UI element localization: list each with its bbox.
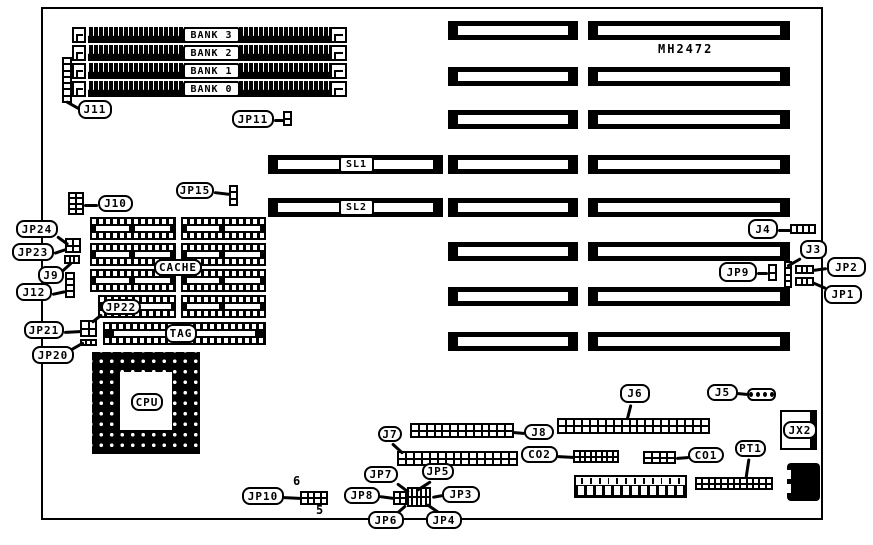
pin	[798, 226, 802, 232]
pin	[703, 485, 707, 489]
jp21-jumper	[80, 320, 97, 337]
pin	[623, 420, 629, 425]
pin	[451, 425, 457, 430]
j4-connector	[790, 224, 816, 234]
pin	[770, 266, 775, 272]
pin	[459, 425, 465, 430]
chip-window	[139, 304, 171, 309]
power-pin-row	[576, 477, 685, 485]
pin	[494, 453, 500, 458]
chip-window	[188, 331, 255, 336]
isa-slot-r8-left	[448, 332, 578, 351]
pin	[615, 420, 621, 425]
pin	[803, 279, 807, 284]
pin	[686, 427, 692, 432]
pin	[686, 420, 692, 425]
pin	[302, 493, 307, 497]
pin	[455, 460, 461, 465]
pin	[615, 427, 621, 432]
pin	[729, 479, 733, 483]
pin	[575, 420, 581, 425]
cache-chip-1	[90, 217, 176, 240]
bank1-label: BANK 1	[183, 63, 240, 79]
jp11-leader	[274, 119, 284, 122]
motherboard-diagram: BANK 3BANK 2BANK 1BANK 0SL1SL2MH2472J11J…	[0, 0, 873, 545]
isa-slot-sl2-right	[588, 198, 790, 217]
j7-header	[397, 451, 518, 466]
pin	[614, 452, 618, 456]
isa-slot-r7-left	[448, 287, 578, 306]
simm-bank0-endcap-left	[72, 81, 86, 97]
isa-slot-sl1-left	[448, 155, 578, 174]
pin	[722, 485, 726, 489]
pin	[420, 432, 426, 437]
pin	[470, 453, 476, 458]
j4-label: J4	[748, 219, 778, 239]
simm-bank1-endcap-right	[330, 63, 347, 79]
pin	[231, 187, 236, 191]
chip-window	[225, 278, 260, 283]
jp3-label: JP3	[442, 486, 480, 503]
jp10-label: JP10	[242, 487, 284, 505]
simm-bank2-endcap-left	[72, 45, 86, 61]
pin	[670, 427, 676, 432]
pin	[90, 330, 96, 336]
chip-window	[187, 278, 219, 283]
pin	[423, 453, 429, 458]
pin	[64, 90, 70, 94]
connector-pin-dot	[756, 392, 760, 397]
jp15-jumper	[229, 185, 238, 206]
pin	[67, 274, 73, 278]
j8-label: J8	[524, 424, 554, 440]
pin	[559, 427, 565, 432]
pin	[716, 479, 720, 483]
keyboard-din-connector	[787, 463, 820, 501]
jp9-leader	[757, 272, 768, 275]
pin	[592, 458, 596, 462]
pin	[591, 420, 597, 425]
pin	[646, 420, 652, 425]
pin	[804, 226, 808, 232]
pin	[808, 267, 812, 272]
pin	[797, 267, 801, 272]
pin	[322, 493, 327, 497]
pin	[638, 427, 644, 432]
pin	[754, 479, 758, 483]
pin	[401, 493, 405, 497]
j7-label: J7	[378, 426, 402, 442]
j11-label: J11	[78, 100, 112, 119]
pin	[608, 458, 612, 462]
power-pin-row	[576, 485, 685, 496]
pin	[603, 458, 607, 462]
pin	[467, 432, 473, 437]
simm-bank3-endcap-left	[72, 27, 86, 43]
chip-window	[187, 252, 219, 257]
jp7-label: JP7	[364, 466, 398, 483]
cache-chip-2	[181, 217, 266, 240]
pin	[470, 460, 476, 465]
chip-window	[187, 304, 219, 309]
pin	[67, 292, 73, 296]
chip-window	[225, 252, 260, 257]
pin	[760, 479, 764, 483]
pin	[614, 458, 618, 462]
pin	[502, 453, 508, 458]
pin	[583, 427, 589, 432]
pin	[67, 280, 73, 284]
isa-slot-r2-right	[588, 67, 790, 86]
pin	[483, 432, 489, 437]
pin	[70, 205, 75, 208]
isa-slot-r8-right	[588, 332, 790, 351]
pin	[412, 425, 418, 430]
pin	[702, 420, 708, 425]
pin	[415, 453, 421, 458]
pin	[748, 479, 752, 483]
pin	[478, 453, 484, 458]
pin	[662, 420, 668, 425]
jp8-label: JP8	[344, 487, 380, 504]
jp10-pin6-text: 6	[293, 474, 303, 486]
pin	[559, 420, 565, 425]
simm-bank3-endcap-right	[330, 27, 347, 43]
pin	[670, 420, 676, 425]
chip-window	[135, 278, 170, 283]
isa-slot-r6-right	[588, 242, 790, 261]
pin	[231, 200, 236, 204]
pin	[285, 120, 290, 125]
pin	[447, 453, 453, 458]
jp21-label: JP21	[24, 321, 64, 339]
connector-pin-dot	[749, 392, 753, 397]
j10-connector	[68, 192, 84, 215]
jp5-label: JP5	[422, 463, 454, 480]
pin	[646, 427, 652, 432]
co1-header	[643, 451, 676, 464]
pin	[494, 460, 500, 465]
pin	[792, 226, 796, 232]
pin	[592, 452, 596, 456]
pin	[427, 489, 429, 496]
sl2-label: SL2	[339, 199, 374, 216]
pin	[475, 425, 481, 430]
pin	[409, 498, 411, 505]
j11-connector	[62, 57, 72, 103]
pin	[407, 460, 413, 465]
pin	[412, 432, 418, 437]
pin	[591, 427, 597, 432]
pin	[654, 420, 660, 425]
isa-slot-r6-left	[448, 242, 578, 261]
j8-header	[410, 423, 514, 438]
chip-window	[96, 226, 129, 231]
pin	[697, 479, 701, 483]
pin	[662, 427, 668, 432]
pin	[697, 485, 701, 489]
connector-pin-dot	[763, 392, 767, 397]
j4-leader	[778, 229, 791, 232]
pin	[431, 453, 437, 458]
chip-window	[135, 226, 170, 231]
simm-bank1-endcap-left	[72, 63, 86, 79]
chip-window	[225, 304, 260, 309]
jp10-pin5-text: 5	[316, 503, 326, 515]
pin	[754, 485, 758, 489]
pin	[502, 460, 508, 465]
jp2-label: JP2	[827, 257, 866, 277]
pin	[654, 427, 660, 432]
pin	[581, 452, 585, 456]
jp9-jumper	[768, 264, 777, 281]
pin	[462, 460, 468, 465]
pin	[668, 459, 674, 463]
pin	[729, 485, 733, 489]
pin	[77, 210, 82, 213]
pin	[567, 427, 573, 432]
pin	[716, 485, 720, 489]
pin	[678, 420, 684, 425]
pin	[661, 453, 667, 457]
pin	[77, 205, 82, 208]
pin	[710, 479, 714, 483]
pin	[92, 341, 95, 344]
pin	[770, 274, 775, 280]
pin	[309, 493, 314, 497]
pin	[478, 460, 484, 465]
tag-label: TAG	[165, 324, 197, 343]
pin	[597, 452, 601, 456]
isa-slot-sl1-right	[588, 155, 790, 174]
j12-connector	[65, 272, 75, 298]
pin	[703, 479, 707, 483]
pin	[741, 485, 745, 489]
pin	[694, 420, 700, 425]
pin	[498, 432, 504, 437]
chip-window	[96, 252, 129, 257]
pin	[608, 452, 612, 456]
power-connector	[574, 475, 687, 498]
pin	[401, 499, 405, 503]
pin	[575, 427, 581, 432]
jp1-label: JP1	[824, 285, 862, 304]
sl1-label: SL1	[339, 156, 374, 173]
connector-pin-dot	[770, 392, 774, 397]
pin	[735, 479, 739, 483]
pin	[486, 460, 492, 465]
pin	[64, 84, 70, 88]
jp9-label: JP9	[719, 262, 757, 282]
pin	[428, 425, 434, 430]
pin	[607, 427, 613, 432]
pin	[575, 452, 579, 456]
co2-header	[573, 450, 619, 463]
cache-label: CACHE	[154, 259, 202, 276]
pin	[64, 78, 70, 82]
pin	[702, 427, 708, 432]
bank0-label: BANK 0	[183, 81, 240, 97]
pin	[436, 425, 442, 430]
pin	[510, 460, 516, 465]
j6-label: J6	[620, 384, 650, 403]
pin	[586, 458, 590, 462]
pin	[302, 499, 307, 503]
pin	[810, 226, 814, 232]
pin	[694, 427, 700, 432]
pin	[395, 493, 399, 497]
pin	[399, 460, 405, 465]
pin	[645, 459, 651, 463]
jp15-label: JP15	[176, 182, 214, 199]
co1-label: CO1	[688, 447, 724, 463]
chip-window	[225, 226, 260, 231]
pin	[82, 330, 88, 336]
pin	[490, 425, 496, 430]
pin	[315, 493, 320, 497]
isa-slot-r3-left	[448, 110, 578, 129]
pin	[490, 432, 496, 437]
jp20-label: JP20	[32, 346, 74, 364]
co2-label: CO2	[521, 446, 558, 463]
pin	[623, 427, 629, 432]
pin	[498, 425, 504, 430]
pin	[64, 72, 70, 76]
j6-header	[557, 418, 710, 434]
pin	[786, 282, 790, 286]
pt1-label: PT1	[735, 440, 766, 457]
pin	[451, 432, 457, 437]
jx2-label: JX2	[783, 421, 817, 439]
pin	[87, 341, 90, 344]
pin	[506, 425, 512, 430]
pin	[586, 452, 590, 456]
pin	[70, 194, 75, 197]
isa-slot-r2-left	[448, 67, 578, 86]
bank2-label: BANK 2	[183, 45, 240, 61]
pin	[786, 276, 790, 280]
j9-label: J9	[38, 266, 64, 284]
pin	[64, 59, 70, 63]
pt1-header	[695, 477, 773, 490]
jp11-jumper	[283, 111, 292, 126]
pin	[581, 458, 585, 462]
pin	[767, 485, 771, 489]
pin	[722, 479, 726, 483]
pin	[645, 453, 651, 457]
jp23-label: JP23	[12, 243, 54, 261]
jp11-label: JP11	[232, 110, 274, 128]
pin	[786, 269, 790, 273]
pin	[74, 247, 79, 252]
pin	[567, 420, 573, 425]
pin	[603, 452, 607, 456]
pin	[475, 432, 481, 437]
jp2-jumper	[795, 265, 814, 274]
pin	[70, 210, 75, 213]
pin	[599, 420, 605, 425]
bank3-label: BANK 3	[183, 27, 240, 43]
pin	[607, 420, 613, 425]
pin	[678, 427, 684, 432]
pin	[82, 322, 88, 328]
pin	[638, 420, 644, 425]
isa-slot-sl2-left	[448, 198, 578, 217]
keyboard-din-notch-top	[785, 470, 791, 479]
pin	[710, 485, 714, 489]
jp1-jumper	[795, 277, 814, 286]
pin	[467, 425, 473, 430]
pin	[231, 193, 236, 197]
jumper-cluster-a	[393, 491, 407, 505]
pin	[443, 432, 449, 437]
isa-slot-r7-right	[588, 287, 790, 306]
isa-slot-r1-left	[448, 21, 578, 40]
pin	[797, 279, 801, 284]
pin	[455, 453, 461, 458]
pin	[413, 498, 415, 505]
jp4-label: JP4	[426, 511, 462, 529]
j5-connector	[747, 388, 776, 401]
pin	[661, 459, 667, 463]
cpu-label: CPU	[131, 393, 163, 411]
pin	[395, 499, 399, 503]
pin	[653, 453, 659, 457]
cache-chip-8	[181, 295, 266, 318]
j10-label: J10	[98, 195, 133, 212]
pin	[74, 240, 79, 245]
pin	[66, 257, 69, 262]
pin	[67, 286, 73, 290]
pin	[77, 194, 82, 197]
pin	[443, 425, 449, 430]
keyboard-din-notch-bottom	[785, 484, 791, 493]
pin	[803, 267, 807, 272]
pin	[483, 425, 489, 430]
jp23-jp24-jumper	[65, 238, 81, 253]
pin	[413, 489, 415, 496]
isa-slot-r1-right	[588, 21, 790, 40]
pin	[428, 432, 434, 437]
j5-label: J5	[707, 384, 738, 401]
pin	[407, 453, 413, 458]
jp24-label: JP24	[16, 220, 58, 238]
pin	[653, 459, 659, 463]
simm-bank0-endcap-right	[330, 81, 347, 97]
pin	[422, 489, 424, 496]
chip-window	[187, 226, 219, 231]
pin	[77, 199, 82, 202]
pin	[75, 257, 78, 262]
pin	[67, 247, 72, 252]
pin	[760, 485, 764, 489]
pin	[422, 498, 424, 505]
pin	[418, 498, 420, 505]
pin	[741, 479, 745, 483]
chip-window	[96, 278, 129, 283]
pin	[439, 453, 445, 458]
pin	[748, 485, 752, 489]
pin	[285, 113, 290, 118]
pin	[599, 427, 605, 432]
chip-window	[135, 252, 170, 257]
pin	[631, 427, 637, 432]
pin	[436, 432, 442, 437]
pin	[459, 432, 465, 437]
pin	[510, 453, 516, 458]
pin	[575, 458, 579, 462]
board-model-text: MH2472	[658, 42, 728, 56]
